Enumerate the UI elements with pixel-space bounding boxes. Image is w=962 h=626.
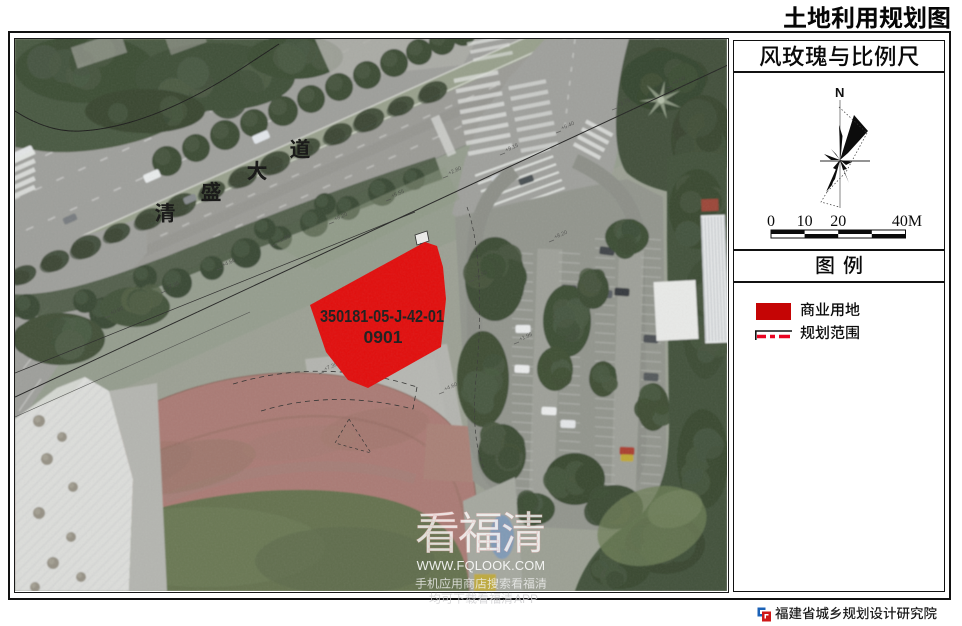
- svg-text:0: 0: [767, 213, 775, 230]
- svg-text:APP: APP: [514, 592, 538, 606]
- svg-text:20: 20: [830, 213, 846, 230]
- svg-text:10: 10: [797, 213, 813, 230]
- svg-text:40M: 40M: [892, 213, 922, 230]
- svg-text:N: N: [835, 85, 844, 100]
